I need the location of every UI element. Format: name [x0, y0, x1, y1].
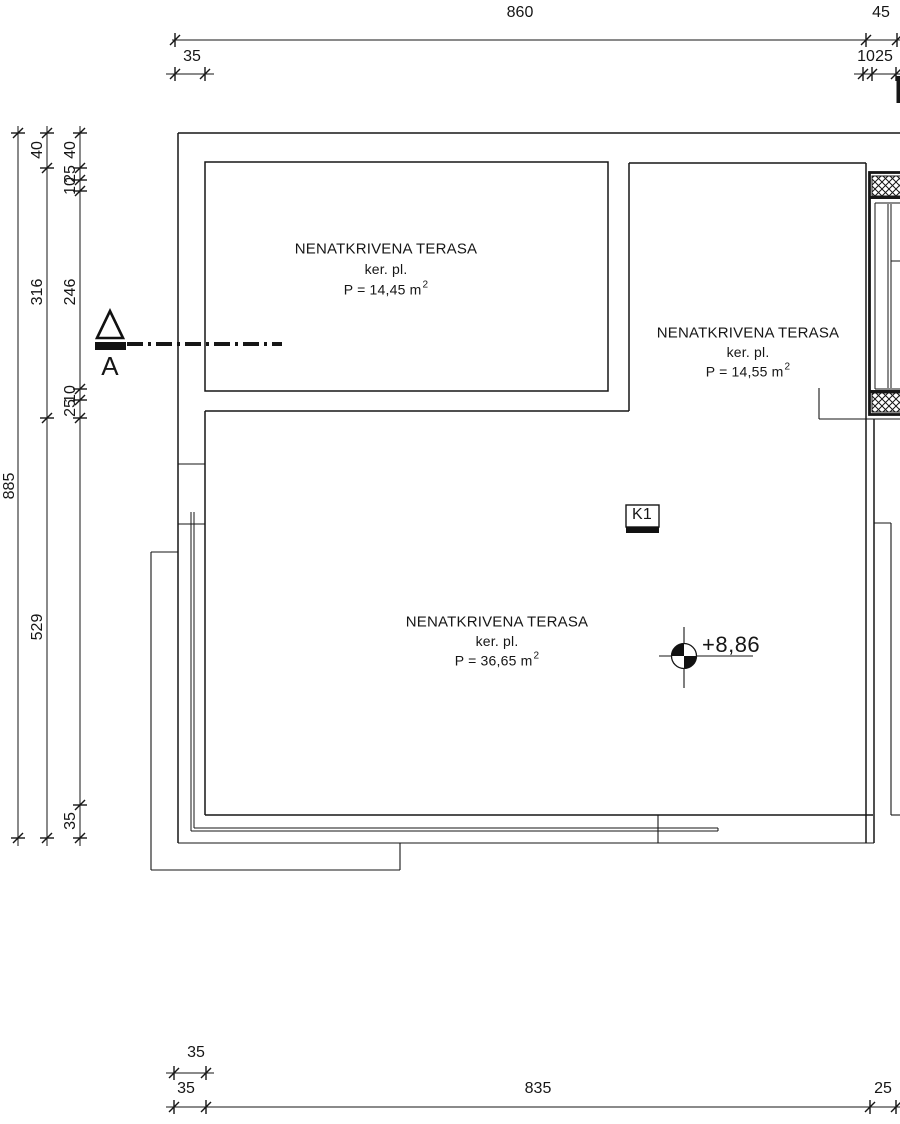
section-cut [95, 311, 282, 350]
dim-left-40: 40 [30, 141, 46, 159]
room-3-name: NENATKRIVENA TERASA [406, 615, 588, 630]
window-assembly [869, 173, 900, 415]
plan-linework [0, 0, 900, 1124]
dim-top-35: 35 [183, 49, 201, 65]
dim-left-inner-35: 35 [63, 812, 79, 830]
dim-top-25: 25 [875, 49, 893, 65]
dim-left-316: 316 [30, 279, 46, 306]
room-3-area: P = 36,65 m2 [455, 653, 540, 668]
room-1-name: NENATKRIVENA TERASA [295, 242, 477, 257]
dimension-lines [18, 40, 900, 1107]
room-2-name: NENATKRIVENA TERASA [657, 326, 839, 341]
floor-plan-sheet: NENATKRIVENA TERASA ker. pl. P = 14,45 m… [0, 0, 900, 1124]
dim-bottom-35-lower: 35 [177, 1081, 195, 1097]
window-frame [875, 203, 900, 389]
dim-bottom-35-upper: 35 [187, 1045, 205, 1061]
dim-left-529: 529 [30, 614, 46, 641]
beam-marker-label: K1 [632, 507, 652, 523]
elevation-value: +8,86 [702, 634, 760, 656]
section-marker-label: A [101, 353, 119, 379]
dim-left-inner-40: 40 [63, 141, 79, 159]
dim-top-45: 45 [872, 5, 890, 21]
room-1-area: P = 14,45 m2 [344, 282, 429, 297]
dim-left-inner-10a: 10 [63, 177, 79, 195]
room-3-finish: ker. pl. [476, 634, 519, 648]
dim-top-860: 860 [507, 5, 534, 21]
masonry-hatch-bottom [872, 393, 900, 412]
dim-left-inner-25b: 25 [63, 399, 79, 417]
dimension-ticks [11, 33, 900, 1114]
dim-left-inner-246: 246 [63, 279, 79, 306]
dim-left-885: 885 [2, 473, 18, 500]
room-1-finish: ker. pl. [365, 262, 408, 276]
walls [178, 133, 900, 843]
dim-bottom-25: 25 [874, 1081, 892, 1097]
section-triangle-icon [97, 311, 123, 338]
railing-double-line [191, 512, 718, 831]
dim-bottom-835: 835 [525, 1081, 552, 1097]
room-2-area: P = 14,55 m2 [706, 364, 791, 379]
dim-top-10: 10 [857, 49, 875, 65]
edge-mark [897, 76, 900, 103]
room-2-finish: ker. pl. [727, 345, 770, 359]
masonry-hatch-top [872, 176, 900, 196]
